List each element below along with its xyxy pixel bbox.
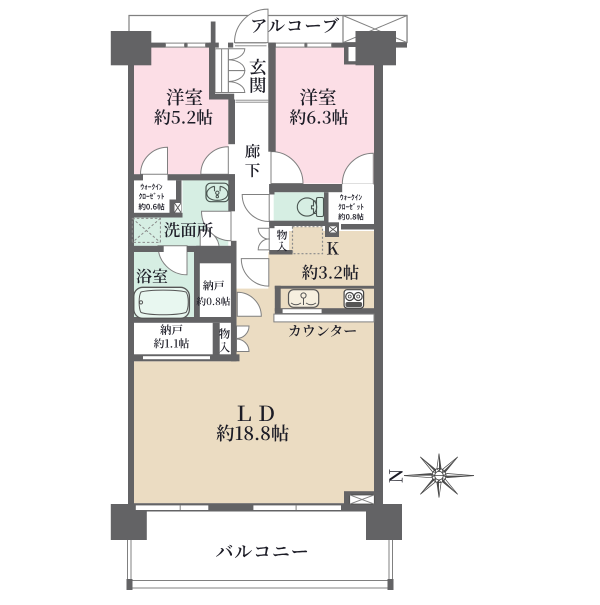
svg-text:約18.8帖: 約18.8帖 [216, 420, 289, 446]
svg-text:アルコーブ: アルコーブ [250, 13, 340, 38]
svg-text:カウンター: カウンター [288, 321, 357, 341]
svg-text:K: K [326, 235, 339, 260]
svg-text:バルコニー: バルコニー [216, 538, 310, 564]
svg-text:浴室: 浴室 [136, 264, 168, 287]
svg-text:約5.2帖: 約5.2帖 [154, 104, 213, 129]
svg-text:入: 入 [219, 340, 231, 356]
svg-text:約0.8帖: 約0.8帖 [196, 294, 230, 308]
svg-text:関: 関 [249, 73, 267, 98]
svg-text:約6.3帖: 約6.3帖 [289, 104, 348, 129]
svg-text:約0.8帖: 約0.8帖 [338, 212, 364, 223]
svg-text:約0.6帖: 約0.6帖 [138, 201, 165, 212]
svg-text:約3.2帖: 約3.2帖 [302, 260, 360, 284]
svg-text:約1.1帖: 約1.1帖 [154, 336, 190, 352]
svg-text:入: 入 [277, 239, 288, 255]
svg-text:下: 下 [245, 159, 261, 181]
svg-text:納戸: 納戸 [203, 278, 225, 294]
svg-text:N: N [383, 469, 409, 484]
svg-text:洗面所: 洗面所 [164, 217, 214, 241]
